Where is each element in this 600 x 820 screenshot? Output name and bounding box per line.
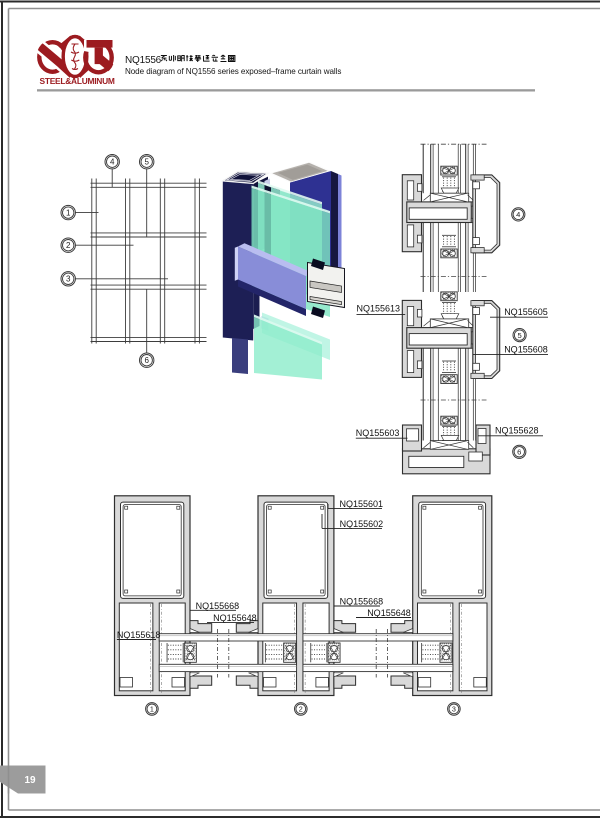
svg-text:NQ155648: NQ155648 [367,608,411,618]
svg-text:NQ155613: NQ155613 [357,304,401,314]
svg-text:NQ155601: NQ155601 [340,499,384,509]
svg-text:6: 6 [517,448,521,457]
svg-text:NQ155603: NQ155603 [356,428,400,438]
svg-text:5: 5 [517,331,521,340]
svg-text:NQ155602: NQ155602 [340,519,384,529]
svg-text:4: 4 [110,158,115,167]
svg-text:NQ155668: NQ155668 [196,601,240,611]
svg-text:2: 2 [299,704,303,713]
svg-text:NQ155668: NQ155668 [340,597,384,607]
svg-text:2: 2 [66,241,71,250]
svg-text:4: 4 [516,210,520,219]
svg-text:6: 6 [144,356,149,365]
svg-text:NQ155608: NQ155608 [504,344,548,354]
svg-text:NQ155605: NQ155605 [504,307,548,317]
svg-text:5: 5 [144,158,149,167]
svg-text:3: 3 [66,275,71,284]
svg-text:NQ155618: NQ155618 [117,630,161,640]
svg-text:®: ® [108,40,113,47]
svg-text:Node diagram of NQ1556 series: Node diagram of NQ1556 series exposed–fr… [125,67,341,76]
svg-text:NQ155628: NQ155628 [495,426,539,436]
svg-text:1: 1 [66,208,71,217]
svg-text:NQ155648: NQ155648 [213,613,257,623]
svg-text:NQ1556: NQ1556 [125,55,162,66]
svg-text:3: 3 [452,704,456,713]
svg-text:19: 19 [24,775,36,786]
svg-text:1: 1 [150,704,154,713]
svg-text:STEEL&ALUMINUM: STEEL&ALUMINUM [40,76,115,86]
